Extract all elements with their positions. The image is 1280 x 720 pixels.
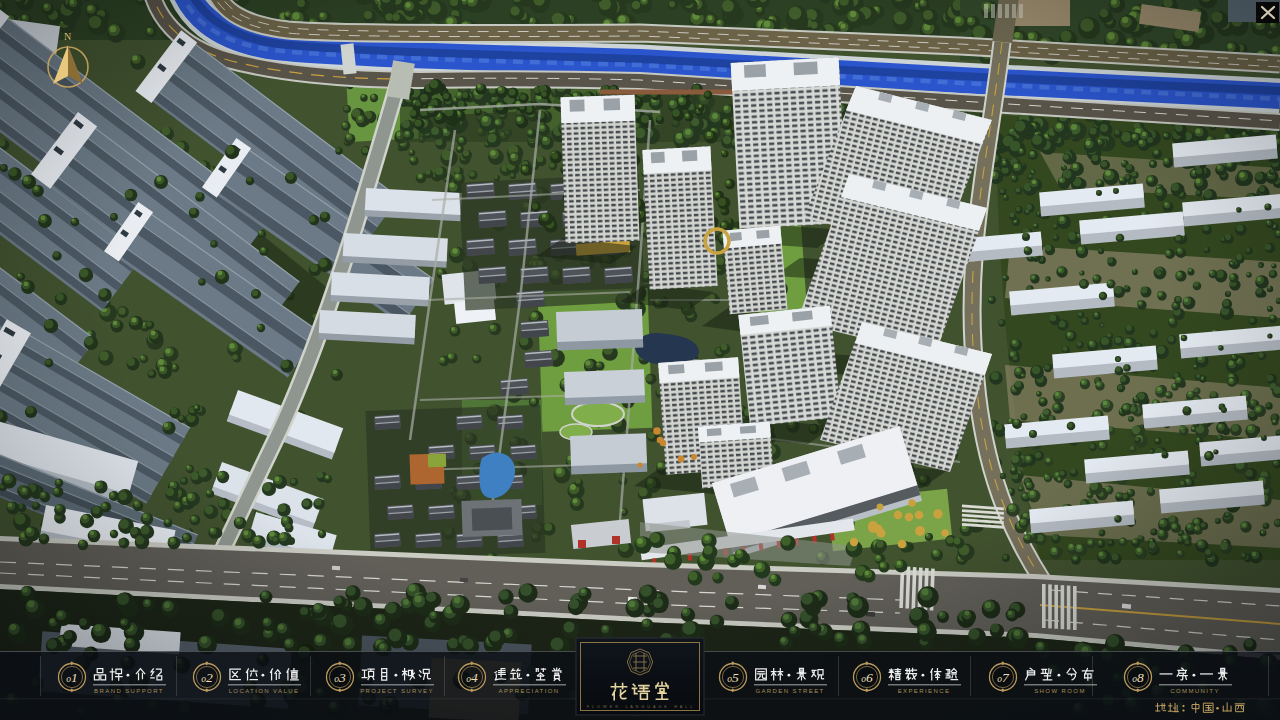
svg-text:COMMUNITY: COMMUNITY	[1170, 688, 1220, 694]
svg-text:N: N	[64, 31, 71, 42]
svg-text:BRAND SUPPORT: BRAND SUPPORT	[94, 688, 164, 694]
svg-text:GARDEN STREET: GARDEN STREET	[755, 688, 824, 694]
svg-text:SHOW ROOM: SHOW ROOM	[1034, 688, 1086, 694]
svg-text:F L O W E R · L A N G U A G E: F L O W E R · L A N G U A G E · H A L L	[587, 705, 694, 709]
svg-text:PROJECT SURVEY: PROJECT SURVEY	[360, 688, 434, 694]
svg-text:LOCATION VALUE: LOCATION VALUE	[229, 688, 300, 694]
svg-text:APPRECIATION: APPRECIATION	[498, 688, 559, 694]
svg-text:EXPERIENCE: EXPERIENCE	[898, 688, 951, 694]
